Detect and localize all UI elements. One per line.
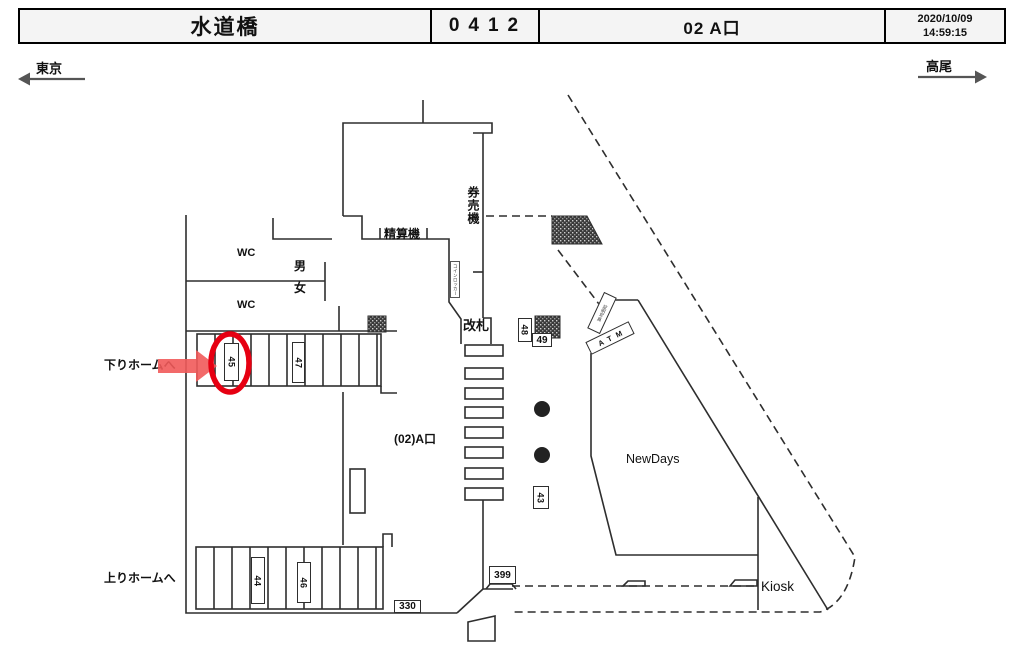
position-box-47: 47: [292, 342, 305, 383]
ticket-machines-label: 券売機: [465, 186, 482, 225]
position-box-45: 45: [224, 343, 239, 381]
coin-locker-label: コインロッカー: [453, 264, 458, 296]
wc-bottom-label: WC: [237, 299, 255, 311]
coin-locker-box: コインロッカー: [450, 261, 460, 298]
position-number: 45: [226, 356, 236, 367]
kiosk-store-label: Kiosk: [761, 579, 794, 594]
position-box-48: 48: [518, 318, 532, 342]
position-number: 399: [494, 570, 511, 581]
direction-right-label: 高尾: [926, 56, 952, 75]
newdays-store-label: NewDays: [626, 452, 680, 466]
station-map-page: { "header": { "station": "水道橋", "code": …: [0, 0, 1024, 648]
position-number: 47: [294, 357, 304, 368]
direction-left-label: 東京: [36, 58, 62, 77]
position-box-44: 44: [251, 557, 265, 604]
to-up-platform-label: 上りホームへ: [104, 569, 176, 586]
floor-plan-drawing: [0, 0, 1024, 648]
position-number: 49: [536, 335, 547, 346]
hatch-block-stairs: [368, 316, 386, 332]
position-number: 43: [536, 492, 546, 503]
exit-name-label: (02)A口: [394, 430, 436, 447]
position-box-330: 330: [394, 600, 421, 613]
men-label: 男: [294, 257, 306, 274]
position-number: 330: [399, 601, 416, 612]
fare-adjustment-label: 精算機: [384, 225, 420, 242]
pillars: [534, 401, 550, 463]
position-number: 46: [299, 577, 309, 588]
position-box-43: 43: [533, 486, 549, 509]
photo-booth-label: 証明写真: [596, 304, 608, 322]
walls: [186, 100, 828, 641]
pillar-icon: [534, 401, 550, 417]
wc-top-label: WC: [237, 247, 255, 259]
women-label: 女: [294, 279, 306, 296]
position-box-46: 46: [297, 562, 311, 603]
gate-label: 改札: [463, 315, 489, 334]
position-box-399: 399: [489, 566, 516, 584]
position-number: 44: [253, 575, 263, 586]
position-box-49: 49: [532, 333, 552, 347]
pillar-icon: [534, 447, 550, 463]
hatch-block-machines: [552, 216, 602, 244]
position-number: 48: [520, 324, 530, 335]
to-down-platform-label: 下りホームへ: [104, 356, 176, 373]
